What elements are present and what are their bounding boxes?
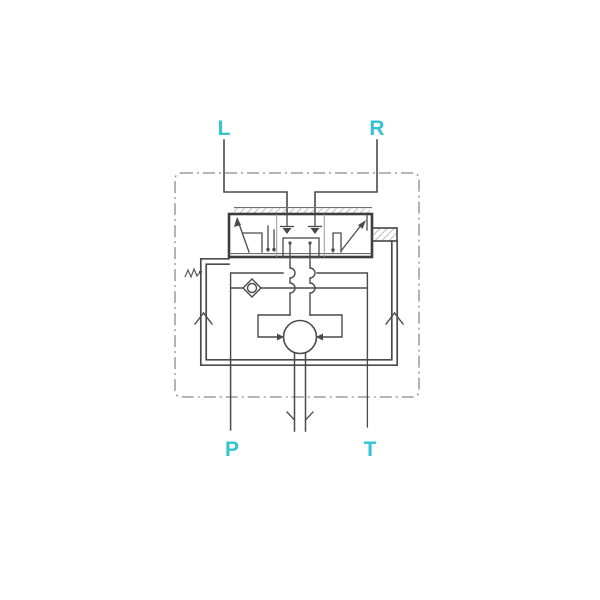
- l-port-line: [224, 140, 287, 214]
- port-label-t: T: [364, 438, 377, 461]
- inner-circuit-rect: [231, 273, 368, 360]
- port-label-p: P: [225, 438, 239, 461]
- drain-arrow-ticks: [287, 412, 313, 420]
- port-label-l: L: [218, 117, 231, 140]
- directional-valve: [229, 214, 397, 257]
- center-channel-lines: [290, 257, 315, 315]
- r-port-line: [315, 140, 377, 214]
- flow-divider-assembly: [258, 315, 342, 354]
- valve-body-rect: [229, 214, 372, 257]
- enclosure-dashed-boundary: [175, 173, 419, 397]
- check-valve-line: [231, 279, 368, 297]
- relief-arrow-left-icon: [195, 313, 212, 324]
- flow-divider-circle: [284, 321, 317, 354]
- schematic-page: L R P T: [0, 0, 600, 600]
- check-valve-icon: [243, 279, 261, 297]
- spring-icon: [185, 269, 202, 277]
- port-label-r: R: [369, 117, 384, 140]
- relief-arrow-right-icon: [386, 313, 403, 324]
- hydraulic-schematic: L R P T: [0, 0, 600, 600]
- valve-side-port-stub: [372, 228, 397, 241]
